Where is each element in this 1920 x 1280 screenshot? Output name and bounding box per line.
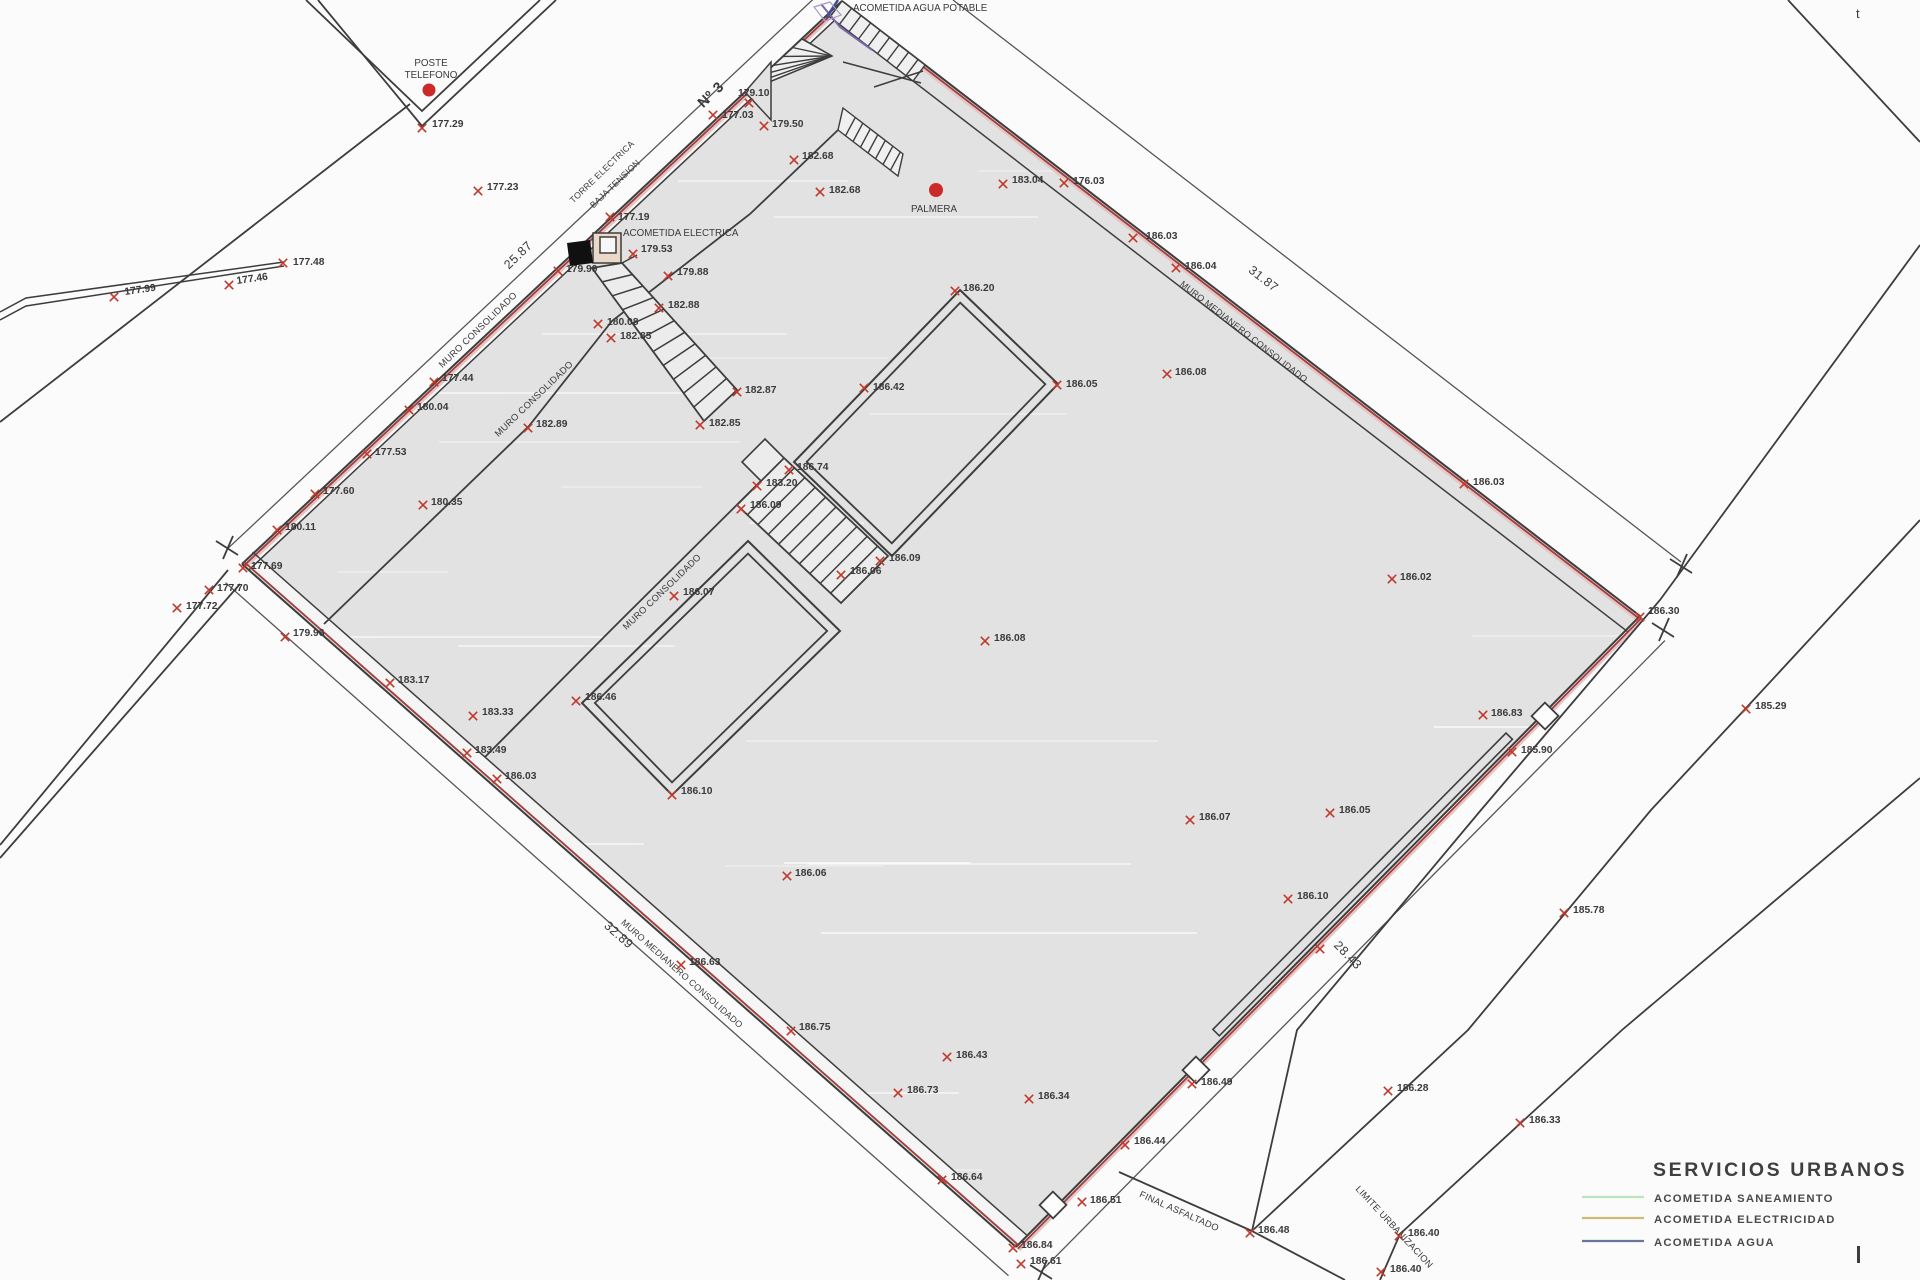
svg-text:185.90: 185.90 xyxy=(1521,745,1553,756)
svg-text:182.85: 182.85 xyxy=(709,418,741,429)
svg-text:183.49: 183.49 xyxy=(475,745,507,756)
svg-text:177.69: 177.69 xyxy=(251,561,283,572)
svg-text:186.74: 186.74 xyxy=(797,462,829,473)
svg-text:186.03: 186.03 xyxy=(505,771,537,782)
svg-text:186.06: 186.06 xyxy=(850,566,882,577)
svg-text:186.05: 186.05 xyxy=(1066,379,1098,390)
svg-text:186.08: 186.08 xyxy=(1175,367,1207,378)
svg-text:186.33: 186.33 xyxy=(1529,1115,1561,1126)
svg-text:180.08: 180.08 xyxy=(607,317,639,328)
svg-text:182.68: 182.68 xyxy=(829,185,861,196)
svg-text:182.89: 182.89 xyxy=(536,419,568,430)
svg-text:186.46: 186.46 xyxy=(585,692,617,703)
svg-text:177.48: 177.48 xyxy=(293,257,325,268)
svg-text:186.40: 186.40 xyxy=(1408,1228,1440,1239)
svg-text:177.29: 177.29 xyxy=(432,119,464,130)
svg-text:180.35: 180.35 xyxy=(431,497,463,508)
svg-text:186.04: 186.04 xyxy=(1185,261,1217,272)
svg-text:186.03: 186.03 xyxy=(1146,231,1178,242)
svg-text:186.84: 186.84 xyxy=(1021,1240,1053,1251)
svg-text:186.09: 186.09 xyxy=(889,553,921,564)
svg-text:SERVICIOS URBANOS: SERVICIOS URBANOS xyxy=(1653,1159,1907,1181)
svg-text:ACOMETIDA SANEAMIENTO: ACOMETIDA SANEAMIENTO xyxy=(1654,1193,1834,1205)
svg-text:186.83: 186.83 xyxy=(1491,708,1523,719)
svg-text:186.63: 186.63 xyxy=(689,957,721,968)
svg-text:177.23: 177.23 xyxy=(487,182,519,193)
svg-text:183.33: 183.33 xyxy=(482,707,514,718)
svg-text:180.04: 180.04 xyxy=(417,402,449,413)
svg-text:179.99: 179.99 xyxy=(566,264,598,275)
svg-text:183.20: 183.20 xyxy=(766,478,798,489)
svg-text:177.70: 177.70 xyxy=(217,583,249,594)
svg-text:182.88: 182.88 xyxy=(668,300,700,311)
svg-text:186.44: 186.44 xyxy=(1134,1136,1166,1147)
svg-text:177.44: 177.44 xyxy=(442,373,474,384)
svg-text:177.53: 177.53 xyxy=(375,447,407,458)
svg-text:ACOMETIDA AGUA POTABLE: ACOMETIDA AGUA POTABLE xyxy=(853,3,988,14)
svg-text:183.04: 183.04 xyxy=(1012,175,1044,186)
svg-text:177.72: 177.72 xyxy=(186,601,218,612)
svg-text:182.68: 182.68 xyxy=(802,151,834,162)
svg-text:ACOMETIDA ELECTRICIDAD: ACOMETIDA ELECTRICIDAD xyxy=(1654,1214,1836,1226)
svg-text:179.10: 179.10 xyxy=(738,88,770,99)
svg-text:185.29: 185.29 xyxy=(1755,701,1787,712)
svg-text:186.05: 186.05 xyxy=(1339,805,1371,816)
svg-text:186.10: 186.10 xyxy=(681,786,713,797)
svg-text:PALMERA: PALMERA xyxy=(911,204,958,215)
svg-text:186.10: 186.10 xyxy=(1297,891,1329,902)
svg-text:186.40: 186.40 xyxy=(1390,1264,1422,1275)
svg-text:179.96: 179.96 xyxy=(293,628,325,639)
svg-text:179.88: 179.88 xyxy=(677,267,709,278)
svg-text:ACOMETIDA ELECTRICA: ACOMETIDA ELECTRICA xyxy=(623,228,739,239)
svg-text:177.03: 177.03 xyxy=(722,110,754,121)
svg-text:186.42: 186.42 xyxy=(873,382,905,393)
svg-text:POSTE: POSTE xyxy=(414,58,448,69)
svg-text:177.60: 177.60 xyxy=(323,486,355,497)
svg-text:186.20: 186.20 xyxy=(963,283,995,294)
svg-text:186.34: 186.34 xyxy=(1038,1091,1070,1102)
svg-text:183.17: 183.17 xyxy=(398,675,430,686)
svg-text:186.49: 186.49 xyxy=(1201,1077,1233,1088)
svg-text:185.78: 185.78 xyxy=(1573,905,1605,916)
svg-text:186.28: 186.28 xyxy=(1397,1083,1429,1094)
svg-text:186.48: 186.48 xyxy=(1258,1225,1290,1236)
svg-text:ACOMETIDA AGUA: ACOMETIDA AGUA xyxy=(1654,1237,1775,1249)
svg-text:176.03: 176.03 xyxy=(1073,176,1105,187)
svg-text:186.08: 186.08 xyxy=(994,633,1026,644)
svg-text:186.03: 186.03 xyxy=(1473,477,1505,488)
svg-text:186.06: 186.06 xyxy=(795,868,827,879)
svg-text:182.85: 182.85 xyxy=(620,331,652,342)
svg-text:179.50: 179.50 xyxy=(772,119,804,130)
svg-text:186.51: 186.51 xyxy=(1090,1195,1122,1206)
svg-text:182.87: 182.87 xyxy=(745,385,777,396)
svg-text:186.64: 186.64 xyxy=(951,1172,983,1183)
svg-text:TELEFONO: TELEFONO xyxy=(405,70,458,81)
svg-text:186.07: 186.07 xyxy=(683,587,715,598)
svg-text:186.43: 186.43 xyxy=(956,1050,988,1061)
svg-text:186.09: 186.09 xyxy=(750,500,782,511)
svg-text:186.02: 186.02 xyxy=(1400,572,1432,583)
svg-text:186.73: 186.73 xyxy=(907,1085,939,1096)
svg-text:186.07: 186.07 xyxy=(1199,812,1231,823)
svg-text:186.30: 186.30 xyxy=(1648,606,1680,617)
svg-text:t: t xyxy=(1856,6,1860,21)
svg-text:179.53: 179.53 xyxy=(641,244,673,255)
svg-text:180.11: 180.11 xyxy=(285,522,316,533)
svg-text:186.61: 186.61 xyxy=(1030,1256,1062,1267)
svg-text:177.19: 177.19 xyxy=(618,212,650,223)
svg-text:186.75: 186.75 xyxy=(799,1022,831,1033)
